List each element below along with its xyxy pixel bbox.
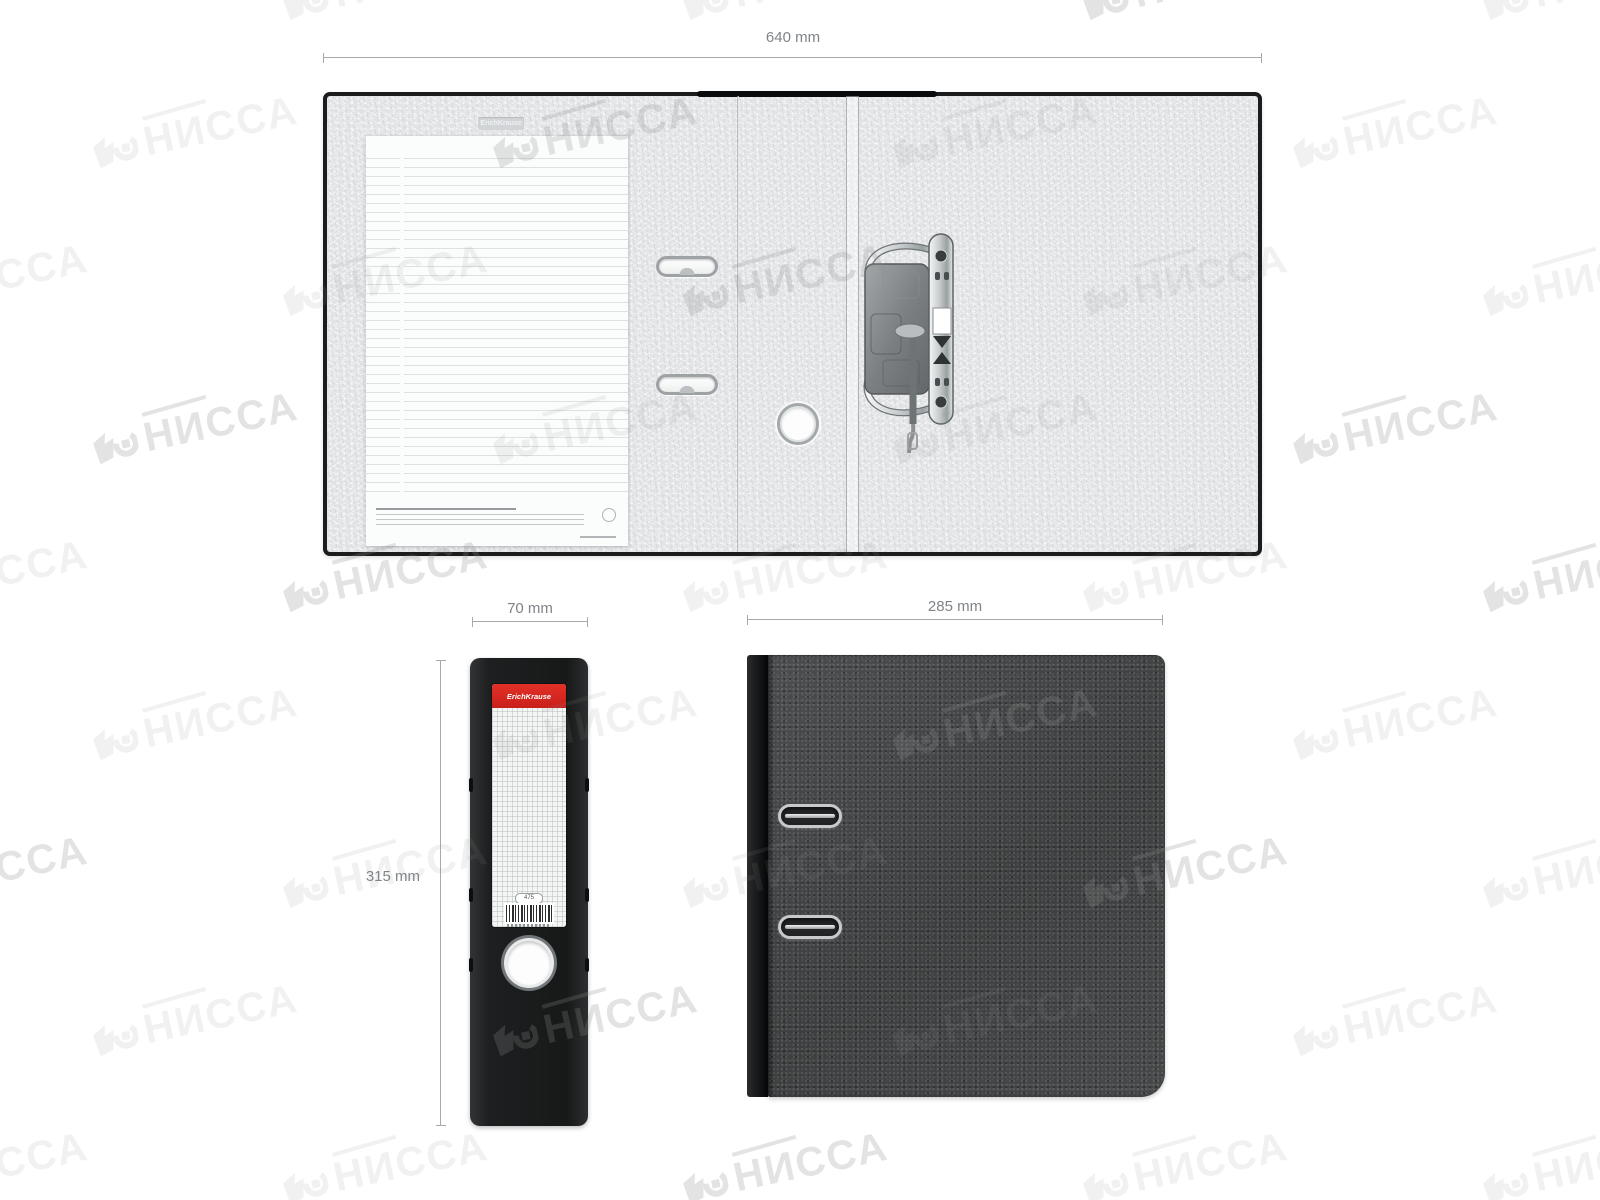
spine-height-dimension-label: 315 mm <box>346 868 420 885</box>
nissa-logo-icon <box>88 1012 141 1061</box>
nissa-watermark-text: НИССА <box>1339 383 1502 462</box>
nissa-logo-icon <box>1288 1012 1341 1061</box>
front-width-dimension-line <box>747 619 1163 620</box>
front-spine-strip <box>747 655 768 1097</box>
nissa-watermark-text: НИССА <box>729 0 892 17</box>
nissa-logo-icon <box>1478 568 1531 617</box>
nissa-watermark: НИССА <box>1477 0 1600 28</box>
nissa-watermark-text: НИССА <box>0 531 92 610</box>
nissa-watermark-text: НИССА <box>1529 235 1600 314</box>
barcode-icon <box>506 905 552 922</box>
nissa-watermark-text: НИССА <box>139 679 302 758</box>
top-width-dimension-label: 640 mm <box>728 29 858 46</box>
nissa-watermark-text: НИССА <box>1339 87 1502 166</box>
front-width-dimension-label: 285 mm <box>890 598 1020 615</box>
paper-fine-print <box>366 500 628 546</box>
spine-label-brand-band: ErichKrause <box>492 684 566 708</box>
fold-line-left <box>737 96 739 552</box>
nissa-logo-icon <box>1078 1160 1131 1200</box>
nissa-logo-swoosh <box>732 1135 797 1157</box>
nissa-logo-swoosh <box>1532 247 1597 269</box>
nissa-watermark-text: НИССА <box>139 975 302 1054</box>
nissa-logo-icon <box>1478 864 1531 913</box>
nissa-watermark: НИССА <box>0 0 92 28</box>
spine-finger-hole <box>507 941 551 985</box>
nissa-watermark: НИССА <box>1077 1123 1292 1200</box>
binder-open-top-view: ErichKrause <box>323 92 1262 556</box>
spine-hinge-notch <box>469 888 473 902</box>
nissa-watermark: НИССА <box>1287 679 1502 769</box>
nissa-logo-icon <box>678 864 731 913</box>
nissa-logo-swoosh <box>142 99 207 121</box>
nissa-watermark: НИССА <box>1477 1123 1600 1200</box>
nissa-logo-swoosh <box>142 395 207 417</box>
finger-eyelet-icon <box>656 374 718 395</box>
finger-eyelet-icon <box>778 915 842 939</box>
nissa-logo-swoosh <box>332 1135 397 1157</box>
fine-print-line <box>376 514 584 515</box>
nissa-watermark-text: НИССА <box>0 827 92 906</box>
nissa-watermark-text: НИССА <box>139 87 302 166</box>
nissa-watermark-text: НИССА <box>139 383 302 462</box>
nissa-logo-icon <box>278 0 331 25</box>
nissa-watermark: НИССА <box>0 827 92 917</box>
paper-top-margin <box>366 136 628 150</box>
nissa-logo-icon <box>88 124 141 173</box>
finger-eyelet-icon <box>778 804 842 828</box>
nissa-logo-icon <box>1288 716 1341 765</box>
nissa-watermark-text: НИССА <box>1529 827 1600 906</box>
nissa-logo-swoosh <box>142 691 207 713</box>
nissa-logo-icon <box>1078 0 1131 25</box>
nissa-watermark: НИССА <box>1287 975 1502 1065</box>
binder-front-view <box>747 655 1165 1097</box>
spine-hinge-notch <box>469 958 473 972</box>
spine-hinge-notch <box>585 888 589 902</box>
nissa-logo-icon <box>678 1160 731 1200</box>
fine-print-line <box>376 519 584 520</box>
product-image-canvas: 640 mm ErichKrause <box>0 0 1600 1200</box>
nissa-watermark: НИССА <box>1287 87 1502 177</box>
nissa-watermark: НИССА <box>677 1123 892 1200</box>
nissa-watermark-text: НИССА <box>1129 0 1292 17</box>
nissa-watermark: НИССА <box>1477 827 1600 917</box>
nissa-watermark-text: НИССА <box>0 1123 92 1200</box>
paper-margin-divider <box>400 136 404 546</box>
nissa-logo-icon <box>1478 272 1531 321</box>
nissa-watermark: НИССА <box>277 0 492 28</box>
nissa-watermark: НИССА <box>87 383 302 473</box>
nissa-watermark-text: НИССА <box>329 0 492 17</box>
recycle-logo-icon <box>602 508 616 522</box>
lever-arch-mechanism-icon <box>853 228 958 458</box>
front-cover <box>768 655 1165 1097</box>
nissa-logo-icon <box>1478 1160 1531 1200</box>
nissa-watermark-text: НИССА <box>1339 679 1502 758</box>
fine-print-line <box>376 508 516 510</box>
spine-width-dimension-line <box>472 621 588 622</box>
finger-eyelet-icon <box>656 256 718 277</box>
nissa-watermark-text: НИССА <box>729 1123 892 1200</box>
nissa-logo-icon <box>678 568 731 617</box>
top-width-dimension-line <box>323 57 1262 58</box>
nissa-logo-icon <box>88 420 141 469</box>
paper-insert <box>366 136 628 546</box>
nissa-watermark: НИССА <box>677 0 892 28</box>
nissa-logo-swoosh <box>1342 987 1407 1009</box>
nissa-logo-swoosh <box>1342 99 1407 121</box>
fine-print-line <box>376 524 584 525</box>
nissa-watermark: НИССА <box>87 975 302 1065</box>
nissa-logo-icon <box>1288 124 1341 173</box>
nissa-watermark: НИССА <box>87 87 302 177</box>
website-text-smudge <box>580 536 616 538</box>
nissa-logo-swoosh <box>1532 543 1597 565</box>
nissa-watermark: НИССА <box>0 531 92 621</box>
nissa-logo-icon <box>278 568 331 617</box>
nissa-watermark: НИССА <box>1477 235 1600 325</box>
nissa-watermark: НИССА <box>0 1123 92 1200</box>
nissa-watermark-text: НИССА <box>1339 975 1502 1054</box>
nissa-watermark-text: НИССА <box>329 827 492 906</box>
nissa-watermark-text: НИССА <box>1529 531 1600 610</box>
nissa-watermark-text: НИССА <box>1529 0 1600 17</box>
nissa-watermark-text: НИССА <box>0 235 92 314</box>
nissa-watermark-text: НИССА <box>1129 1123 1292 1200</box>
nissa-logo-icon <box>278 864 331 913</box>
nissa-watermark: НИССА <box>87 679 302 769</box>
nissa-logo-icon <box>1078 568 1131 617</box>
brand-stamp: ErichKrause <box>478 117 524 130</box>
nissa-watermark-text: НИССА <box>1529 1123 1600 1200</box>
rado-hole-icon <box>777 403 819 445</box>
spine-width-dimension-label: 70 mm <box>472 600 588 617</box>
spine-top-edge <box>697 91 937 97</box>
nissa-watermark-text: НИССА <box>0 0 92 17</box>
nissa-logo-icon <box>88 716 141 765</box>
barcode-digits-smudge <box>507 924 551 927</box>
nissa-logo-icon <box>1288 420 1341 469</box>
nissa-logo-icon <box>678 0 731 25</box>
nissa-watermark: НИССА <box>1077 0 1292 28</box>
barcode-tag: 475 <box>515 893 543 904</box>
spine-height-dimension-line <box>440 660 441 1126</box>
nissa-logo-swoosh <box>1132 1135 1197 1157</box>
nissa-logo-swoosh <box>142 987 207 1009</box>
binder-spine-view: ErichKrause 475 <box>470 658 588 1126</box>
nissa-logo-swoosh <box>1532 839 1597 861</box>
spine-hinge-notch <box>585 958 589 972</box>
nissa-logo-icon <box>1478 0 1531 25</box>
nissa-watermark-text: НИССА <box>329 1123 492 1200</box>
spine-hinge-notch <box>469 778 473 792</box>
nissa-watermark: НИССА <box>277 1123 492 1200</box>
nissa-logo-swoosh <box>1342 691 1407 713</box>
nissa-watermark: НИССА <box>0 235 92 325</box>
nissa-logo-swoosh <box>1342 395 1407 417</box>
nissa-watermark: НИССА <box>1287 383 1502 473</box>
nissa-logo-swoosh <box>1532 1135 1597 1157</box>
nissa-logo-icon <box>278 1160 331 1200</box>
nissa-watermark: НИССА <box>1477 531 1600 621</box>
spine-hinge-notch <box>585 778 589 792</box>
spine-label: ErichKrause 475 <box>492 684 566 927</box>
nissa-logo-swoosh <box>332 839 397 861</box>
